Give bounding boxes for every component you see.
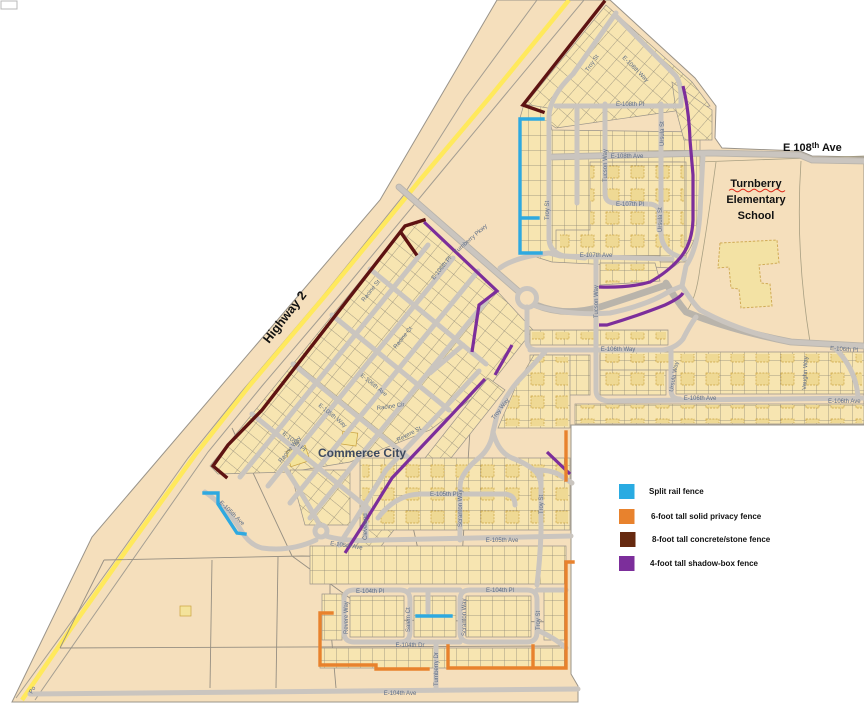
svg-text:Scranton Way: Scranton Way	[462, 599, 468, 636]
svg-text:E-104th Pl: E-104th Pl	[486, 588, 514, 594]
svg-text:E-106th Way: E-106th Way	[601, 347, 635, 353]
svg-text:School: School	[738, 210, 775, 222]
svg-text:E-106th Ave: E-106th Ave	[684, 396, 717, 402]
svg-text:Revere Way: Revere Way	[344, 601, 350, 634]
svg-text:Turnberry: Turnberry	[730, 178, 782, 190]
svg-text:4-foot tall shadow-box fence: 4-foot tall shadow-box fence	[650, 559, 759, 568]
svg-text:Tucson Way: Tucson Way	[603, 149, 609, 182]
svg-text:E-108th Ave: E-108th Ave	[611, 154, 644, 160]
svg-text:E-104th Pl: E-104th Pl	[356, 589, 384, 595]
svg-text:Ursula St: Ursula St	[658, 207, 664, 232]
svg-text:E-104th Dr: E-104th Dr	[395, 643, 424, 649]
svg-text:Elementary: Elementary	[726, 194, 786, 206]
svg-text:E-108th Pl: E-108th Pl	[616, 102, 644, 108]
svg-text:Scranton Way: Scranton Way	[458, 490, 464, 527]
svg-text:E-105th Pl: E-105th Pl	[430, 492, 458, 498]
svg-text:E-105th Ave: E-105th Ave	[486, 538, 519, 544]
svg-text:E-107th Pl: E-107th Pl	[616, 202, 644, 208]
svg-text:8-foot tall concrete/stone fen: 8-foot tall concrete/stone fence	[652, 535, 771, 544]
svg-text:Troy St: Troy St	[539, 495, 545, 514]
svg-text:Troy St: Troy St	[545, 201, 551, 220]
svg-text:Ursula St: Ursula St	[660, 121, 666, 146]
svg-text:Cleveland: Cleveland	[363, 513, 369, 540]
svg-text:Troy St: Troy St	[536, 611, 542, 630]
svg-text:Split rail fence: Split rail fence	[649, 487, 704, 496]
svg-text:Tucson Way: Tucson Way	[594, 285, 600, 318]
svg-text:E-104th Ave: E-104th Ave	[384, 691, 417, 697]
svg-text:E-107th Ave: E-107th Ave	[580, 253, 613, 259]
svg-text:Turnberry Dr: Turnberry Dr	[434, 652, 440, 686]
svg-text:Commerce City: Commerce City	[318, 446, 406, 460]
svg-text:6-foot tall solid privacy fenc: 6-foot tall solid privacy fence	[651, 512, 762, 521]
svg-text:E-106th Ave: E-106th Ave	[828, 399, 861, 405]
svg-text:Salem Ct: Salem Ct	[406, 607, 412, 632]
